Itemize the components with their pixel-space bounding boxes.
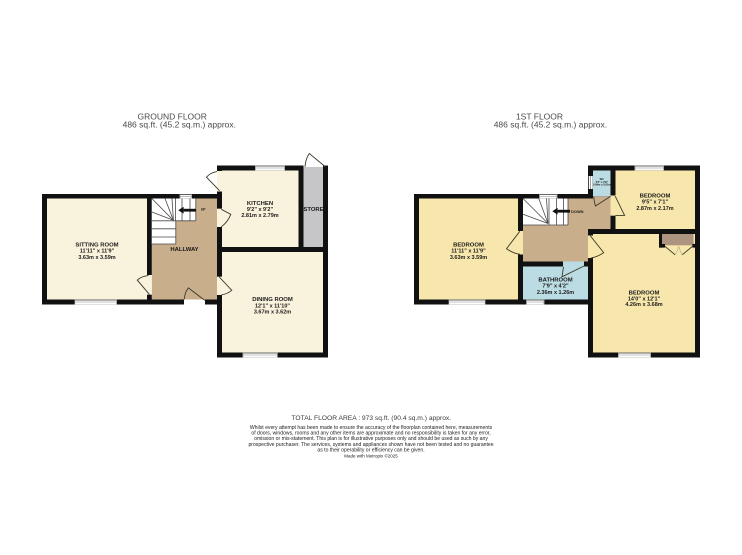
svg-text:3.67m x 3.62m: 3.67m x 3.62m: [254, 310, 291, 316]
svg-text:486 sq.ft. (45.2 sq.m.) approx: 486 sq.ft. (45.2 sq.m.) approx.: [494, 119, 607, 129]
svg-text:11'11" x 11'9": 11'11" x 11'9": [80, 249, 115, 255]
svg-text:3.63m x 3.59m: 3.63m x 3.59m: [78, 255, 115, 261]
svg-text:KITCHEN: KITCHEN: [247, 201, 273, 207]
svg-text:as to their operability or eff: as to their operability or efficiency ca…: [317, 448, 424, 454]
svg-text:DINING ROOM: DINING ROOM: [252, 297, 293, 303]
svg-text:3.63m x 3.59m: 3.63m x 3.59m: [450, 255, 487, 261]
svg-text:STORE: STORE: [303, 207, 323, 213]
svg-text:2.36m x 1.26m: 2.36m x 1.26m: [537, 290, 574, 296]
svg-text:7'9" x 4'2": 7'9" x 4'2": [542, 284, 569, 290]
svg-text:HALLWAY: HALLWAY: [170, 247, 198, 253]
svg-text:BEDROOM: BEDROOM: [640, 193, 671, 199]
svg-text:4.26m x 3.68m: 4.26m x 3.68m: [625, 302, 662, 308]
svg-text:12'1" x 11'10": 12'1" x 11'10": [255, 303, 290, 309]
svg-text:2.87m x 2.17m: 2.87m x 2.17m: [636, 206, 673, 212]
svg-text:0.99m x 0.81m: 0.99m x 0.81m: [593, 183, 611, 187]
svg-text:2.81m x 2.79m: 2.81m x 2.79m: [241, 213, 278, 219]
svg-text:9'5" x 7'1": 9'5" x 7'1": [642, 200, 669, 206]
svg-text:BATHROOM: BATHROOM: [538, 277, 572, 283]
svg-text:11'11" x 11'9": 11'11" x 11'9": [451, 249, 486, 255]
svg-text:BEDROOM: BEDROOM: [453, 242, 484, 248]
svg-text:486 sq.ft. (45.2 sq.m.) approx: 486 sq.ft. (45.2 sq.m.) approx.: [123, 119, 236, 129]
svg-text:Made with Metropix ©2025: Made with Metropix ©2025: [344, 453, 398, 459]
svg-text:DOWN: DOWN: [571, 209, 584, 214]
svg-text:SITTING ROOM: SITTING ROOM: [75, 242, 118, 248]
svg-text:TOTAL FLOOR AREA : 973 sq.ft.: TOTAL FLOOR AREA : 973 sq.ft. (90.4 sq.m…: [291, 415, 451, 422]
svg-text:UP: UP: [201, 208, 206, 212]
